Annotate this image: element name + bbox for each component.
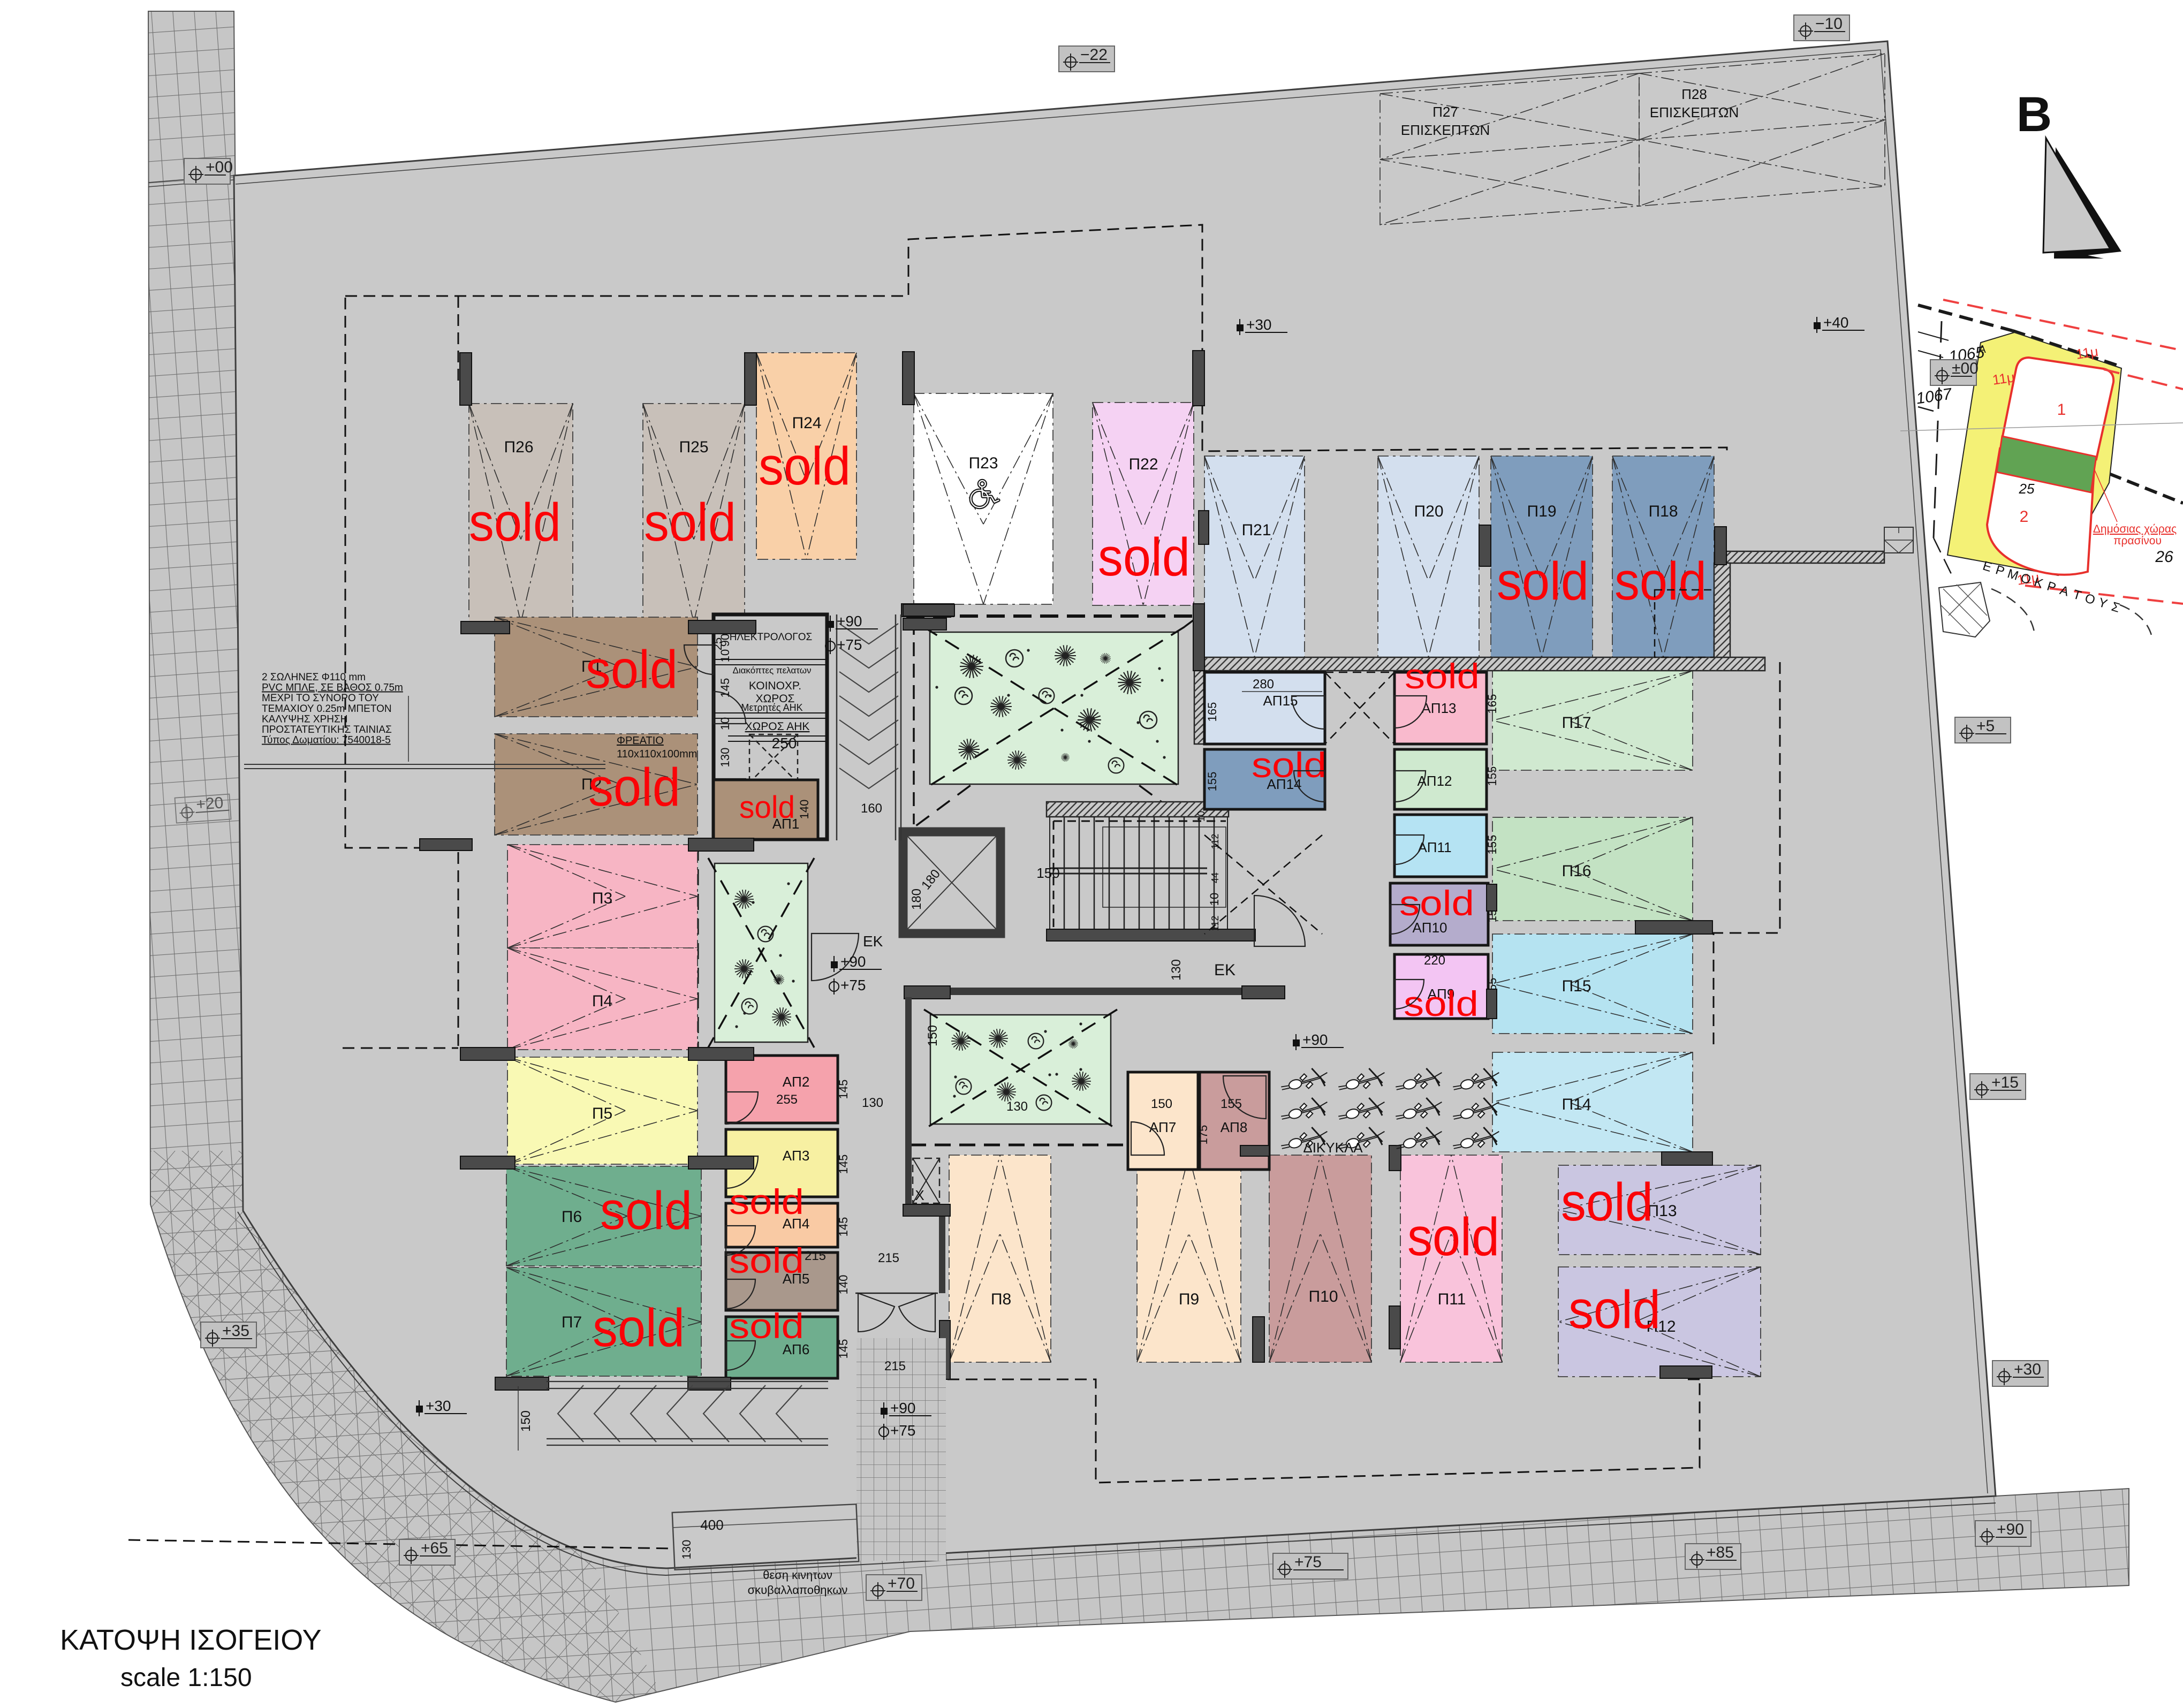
svg-text:145: 145	[837, 1080, 850, 1099]
svg-text:sold: sold	[759, 436, 851, 496]
svg-text:ΤΕΜΑΧΙΟΥ 0.25m ΜΠΕΤΟΝ: ΤΕΜΑΧΙΟΥ 0.25m ΜΠΕΤΟΝ	[262, 703, 392, 715]
svg-text:EK: EK	[863, 933, 883, 950]
svg-text:+65: +65	[421, 1539, 448, 1557]
svg-text:A: A	[1979, 344, 1986, 355]
svg-text:155: 155	[1485, 835, 1499, 855]
svg-text:145: 145	[718, 678, 732, 698]
svg-text:11μ: 11μ	[1991, 369, 2016, 388]
svg-text:150: 150	[1151, 1097, 1172, 1111]
svg-text:215: 215	[884, 1359, 906, 1373]
svg-text:Π25: Π25	[679, 438, 708, 456]
svg-text:EK: EK	[1214, 961, 1235, 979]
svg-text:155: 155	[1206, 772, 1219, 792]
svg-text:scale 1:150: scale 1:150	[120, 1664, 252, 1692]
svg-text:Π23: Π23	[968, 454, 998, 472]
svg-text:10: 10	[718, 649, 732, 662]
svg-text:sold: sold	[729, 1306, 804, 1346]
svg-text:Π6: Π6	[562, 1208, 582, 1226]
svg-text:Π9: Π9	[1179, 1291, 1199, 1308]
svg-text:130: 130	[862, 1096, 883, 1110]
svg-text:175: 175	[1196, 1125, 1210, 1145]
svg-text:25: 25	[711, 637, 724, 650]
svg-text:Π15: Π15	[1562, 977, 1591, 995]
svg-text:Π21: Π21	[1241, 521, 1271, 539]
svg-text:140: 140	[798, 800, 811, 819]
svg-text:PVC ΜΠΛΕ, ΣΕ ΒΑΘΟΣ 0.75m: PVC ΜΠΛΕ, ΣΕ ΒΑΘΟΣ 0.75m	[262, 682, 403, 694]
svg-text:±00: ±00	[1952, 360, 1979, 377]
svg-text:Π28: Π28	[1681, 86, 1707, 102]
svg-text:+90: +90	[1302, 1031, 1328, 1048]
svg-text:sold: sold	[1614, 551, 1707, 611]
svg-text:112: 112	[1210, 916, 1221, 931]
svg-text:ΑΠ2: ΑΠ2	[783, 1074, 810, 1090]
svg-text:180: 180	[909, 889, 924, 910]
svg-text:+00: +00	[206, 158, 233, 176]
svg-text:400: 400	[700, 1517, 723, 1533]
svg-text:215: 215	[878, 1251, 899, 1265]
svg-text:ΑΠ15: ΑΠ15	[1263, 693, 1298, 709]
svg-text:+90: +90	[840, 953, 866, 970]
svg-text:Π5: Π5	[592, 1105, 612, 1122]
svg-text:280: 280	[1253, 677, 1274, 692]
svg-text:Π20: Π20	[1414, 503, 1443, 520]
svg-text:θεση κινητων: θεση κινητων	[763, 1568, 832, 1582]
svg-text:Π3: Π3	[592, 890, 612, 907]
svg-text:+70: +70	[888, 1575, 915, 1592]
svg-text:Π19: Π19	[1527, 503, 1556, 520]
svg-text:ΠΡΟΣΤΑΤΕΥΤΙΚΗΣ ΤΑΙΝΙΑΣ: ΠΡΟΣΤΑΤΕΥΤΙΚΗΣ ΤΑΙΝΙΑΣ	[262, 724, 392, 735]
svg-text:sold: sold	[588, 757, 680, 817]
svg-text:150: 150	[926, 1025, 940, 1046]
svg-text:B: B	[2017, 87, 2052, 142]
svg-text:250: 250	[772, 735, 797, 751]
svg-text:sold: sold	[593, 1298, 685, 1358]
svg-text:Π26: Π26	[504, 438, 533, 456]
svg-text:215: 215	[805, 1249, 826, 1263]
svg-text:44: 44	[1210, 872, 1221, 883]
svg-text:−22: −22	[1080, 46, 1108, 64]
svg-text:sold: sold	[739, 790, 795, 825]
svg-text:Δημόσιας χώρας: Δημόσιας χώρας	[2093, 523, 2177, 535]
svg-text:Τύπος Δωματίου: 7540018-5: Τύπος Δωματίου: 7540018-5	[262, 735, 391, 746]
svg-text:+30: +30	[1246, 316, 1272, 333]
svg-text:Π16: Π16	[1562, 862, 1591, 880]
svg-text:ΑΠ7: ΑΠ7	[1149, 1119, 1177, 1135]
svg-text:165: 165	[1206, 702, 1219, 722]
svg-text:sold: sold	[469, 492, 561, 552]
svg-text:165: 165	[1485, 694, 1499, 714]
svg-text:ΑΠ13: ΑΠ13	[1421, 700, 1456, 716]
svg-text:150: 150	[1036, 865, 1059, 881]
svg-text:145: 145	[837, 1217, 850, 1237]
svg-text:ΕΠΙΣΚΕΠΤΩΝ: ΕΠΙΣΚΕΠΤΩΝ	[1401, 122, 1490, 138]
svg-text:255: 255	[776, 1092, 798, 1107]
svg-text:+90: +90	[837, 613, 862, 629]
svg-text:σκυβαλλαποθηκων: σκυβαλλαποθηκων	[748, 1583, 848, 1597]
svg-text:220: 220	[1424, 953, 1445, 968]
svg-text:+75: +75	[840, 977, 866, 993]
svg-text:2 ΣΩΛΗΝΕΣ Φ110 mm: 2 ΣΩΛΗΝΕΣ Φ110 mm	[262, 672, 366, 683]
svg-text:Διακόπτες πελατων: Διακόπτες πελατων	[732, 665, 811, 675]
svg-text:Π11: Π11	[1438, 1291, 1466, 1308]
svg-text:ΚΟΙΝΟΧΡ.: ΚΟΙΝΟΧΡ.	[749, 680, 801, 692]
svg-text:sold: sold	[600, 1181, 692, 1241]
svg-text:130: 130	[1169, 959, 1184, 981]
svg-text:−10: −10	[1815, 15, 1843, 33]
svg-text:Μετρητές ΑΗΚ: Μετρητές ΑΗΚ	[741, 702, 802, 713]
svg-text:+30: +30	[2014, 1361, 2041, 1378]
svg-text:ΧΩΡΟΣ ΑΗΚ: ΧΩΡΟΣ ΑΗΚ	[745, 720, 810, 733]
svg-text:+15: +15	[1991, 1074, 2019, 1091]
svg-text:10: 10	[1208, 893, 1221, 906]
svg-text:+85: +85	[1707, 1544, 1734, 1561]
svg-text:πρασίνου: πρασίνου	[2113, 535, 2162, 547]
svg-text:130: 130	[1006, 1099, 1028, 1114]
svg-text:2: 2	[2020, 508, 2029, 526]
svg-text:sold: sold	[1405, 656, 1480, 696]
svg-text:ΚΑΤΟΨΗ ΙΣΟΓΕΙΟΥ: ΚΑΤΟΨΗ ΙΣΟΓΕΙΟΥ	[60, 1624, 322, 1656]
svg-text:sold: sold	[729, 1182, 804, 1221]
svg-text:sold: sold	[1404, 984, 1479, 1023]
svg-text:ΚΑΛΥΨΗΣ ΧΡΗΣΗ: ΚΑΛΥΨΗΣ ΧΡΗΣΗ	[262, 713, 347, 725]
svg-text:Π24: Π24	[792, 414, 821, 432]
svg-text:Π8: Π8	[991, 1291, 1011, 1308]
svg-text:+40: +40	[1823, 314, 1849, 331]
svg-text:130: 130	[718, 748, 732, 768]
svg-text:112: 112	[1210, 834, 1221, 849]
svg-text:ΔΙΚΥΚΛΑ: ΔΙΚΥΚΛΑ	[1303, 1140, 1363, 1156]
svg-text:sold: sold	[1098, 527, 1190, 587]
svg-text:ΑΠ8: ΑΠ8	[1221, 1119, 1248, 1135]
svg-text:Π22: Π22	[1128, 456, 1158, 473]
svg-text:sold: sold	[1252, 745, 1327, 785]
svg-text:+75: +75	[890, 1422, 916, 1439]
svg-text:ΦΡΕΑΤΙΟ: ΦΡΕΑΤΙΟ	[617, 735, 664, 747]
svg-text:25: 25	[2019, 481, 2035, 497]
svg-text:ΑΠ3: ΑΠ3	[783, 1148, 810, 1164]
svg-text:155: 155	[1485, 766, 1499, 786]
svg-text:160: 160	[861, 801, 882, 816]
svg-text:+90: +90	[1997, 1521, 2024, 1538]
svg-text:sold: sold	[1497, 551, 1589, 611]
svg-text:sold: sold	[1568, 1280, 1661, 1340]
svg-text:+90: +90	[890, 1400, 916, 1416]
svg-text:+30: +30	[426, 1398, 451, 1414]
svg-text:sold: sold	[729, 1241, 804, 1280]
svg-text:150: 150	[519, 1410, 533, 1432]
svg-text:sold: sold	[586, 640, 678, 700]
svg-text:ΕΠΙΣΚΕΠΤΩΝ: ΕΠΙΣΚΕΠΤΩΝ	[1650, 104, 1739, 120]
svg-text:sold: sold	[1399, 883, 1474, 923]
svg-text:sold: sold	[1561, 1172, 1653, 1232]
svg-text:Π7: Π7	[562, 1314, 582, 1331]
svg-text:145: 145	[837, 1155, 850, 1174]
svg-text:11μ: 11μ	[2075, 343, 2099, 362]
svg-text:Π14: Π14	[1562, 1096, 1591, 1113]
svg-text:145: 145	[837, 1339, 850, 1359]
svg-text:Π18: Π18	[1648, 503, 1678, 520]
svg-text:130: 130	[680, 1540, 693, 1560]
svg-text:140: 140	[837, 1275, 850, 1295]
svg-text:+5: +5	[1976, 717, 1995, 735]
svg-text:Π17: Π17	[1562, 714, 1591, 732]
svg-text:+75: +75	[837, 636, 862, 653]
svg-text:10: 10	[1196, 811, 1207, 822]
svg-text:X: X	[915, 1187, 924, 1203]
svg-text:Π10: Π10	[1308, 1288, 1338, 1305]
svg-text:Π27: Π27	[1432, 104, 1458, 120]
svg-text:+35: +35	[222, 1322, 249, 1340]
svg-text:ΜΕΧΡΙ ΤΟ ΣΥΝΟΡΟ ΤΟΥ: ΜΕΧΡΙ ΤΟ ΣΥΝΟΡΟ ΤΟΥ	[262, 693, 379, 704]
svg-text:ΑΠ12: ΑΠ12	[1417, 773, 1452, 789]
svg-text:sold: sold	[644, 492, 736, 552]
svg-text:+75: +75	[1294, 1553, 1322, 1571]
svg-text:sold: sold	[1407, 1207, 1499, 1267]
svg-text:1: 1	[2057, 401, 2066, 419]
svg-text:110x110x100mm: 110x110x100mm	[617, 748, 697, 760]
svg-text:26: 26	[2155, 548, 2173, 566]
svg-text:Π4: Π4	[592, 992, 612, 1010]
